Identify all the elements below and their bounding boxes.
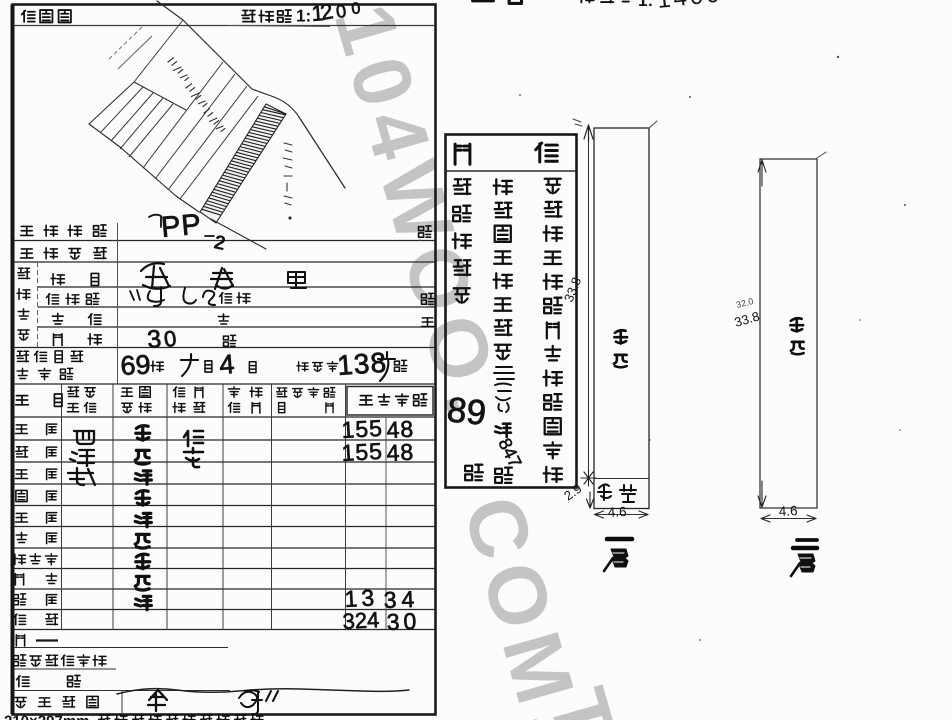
svg-text:69: 69 [120,349,152,381]
svg-text:33.8: 33.8 [561,275,584,304]
svg-text:32.0: 32.0 [735,296,754,310]
svg-text:48: 48 [386,439,415,466]
svg-text:324: 324 [342,607,380,634]
svg-text:4.6: 4.6 [607,504,627,520]
svg-text:4: 4 [218,349,235,380]
svg-text:847: 847 [494,435,525,471]
svg-text:1400: 1400 [656,0,724,14]
svg-text:2: 2 [212,231,227,255]
svg-text:138: 138 [336,347,388,381]
svg-text:2.9: 2.9 [561,481,584,504]
svg-text:30: 30 [386,608,420,635]
svg-text:0: 0 [163,326,178,352]
svg-text:PP: PP [160,209,203,244]
svg-text:155: 155 [341,438,384,466]
svg-text:4.6: 4.6 [778,503,798,519]
svg-text:89: 89 [445,390,488,433]
svg-text:1:: 1: [638,0,653,10]
svg-text:210×297mm: 210×297mm [4,713,90,720]
svg-text:COM.: COM. [446,487,602,720]
svg-text:33.8: 33.8 [733,308,761,329]
svg-text:1:: 1: [296,7,311,26]
svg-text:0: 0 [351,0,362,18]
